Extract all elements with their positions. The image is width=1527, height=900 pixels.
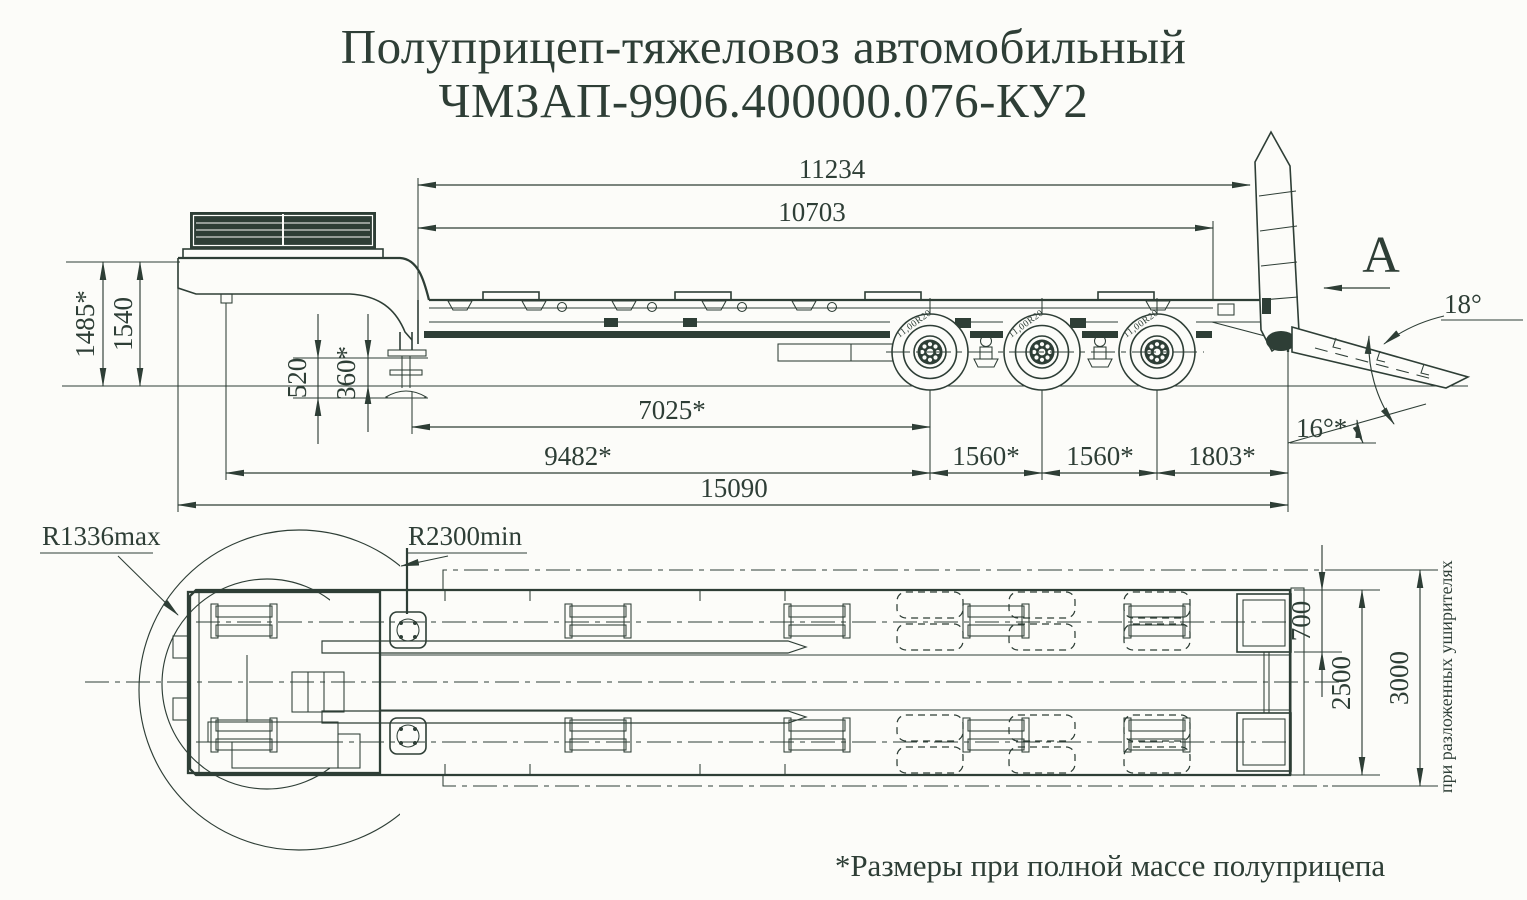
gooseneck-rack <box>183 212 383 258</box>
dim-7025: 7025* <box>638 395 706 425</box>
ramp-raised <box>1255 132 1299 351</box>
toolbox-side <box>778 344 900 361</box>
dim-3000: 3000 <box>1384 651 1414 705</box>
dim-rear-angle: 16°* <box>1296 413 1347 443</box>
dim-deck-length: 10703 <box>778 197 846 227</box>
plan-deck <box>85 548 1345 775</box>
wideners-extended <box>443 570 1332 786</box>
view-direction-A: A <box>1324 227 1400 288</box>
swing-arc-r1336 <box>162 579 372 789</box>
view-label-a: A <box>1362 227 1400 284</box>
dim-ramp-angle: 18° <box>1444 289 1482 319</box>
dim-frame-length: 11234 <box>799 154 866 184</box>
kingpin-pads <box>390 612 426 754</box>
footnote: *Размеры при полной массе полуприцепа <box>790 848 1430 884</box>
dim-height-laden: 1485* <box>70 290 100 358</box>
bogie-wheels: 11,00R20 11,00R20 11,00R20 <box>886 298 1204 480</box>
dim-9482: 9482* <box>544 441 612 471</box>
dim-520: 520 <box>282 358 312 399</box>
dim-1560-a: 1560* <box>952 441 1020 471</box>
extended-width-note: при разложенных уширителях <box>1436 560 1456 793</box>
label-r2300min: R2300min <box>408 521 523 551</box>
label-r1336max: R1336max <box>42 521 161 551</box>
gooseneck <box>178 212 429 340</box>
plan-view: R1336max R2300min 700 <box>40 521 1456 850</box>
plan-view-dimensions: 700 2500 3000 при разложенных уширителях <box>1286 545 1456 793</box>
side-view: 11,00R20 11,00R20 11,00R20 <box>62 132 1523 512</box>
radius-callouts: R1336max R2300min <box>40 521 527 615</box>
dim-1803: 1803* <box>1188 441 1256 471</box>
dim-360: 360* <box>331 346 361 400</box>
technical-drawing: 11,00R20 11,00R20 11,00R20 <box>0 0 1527 900</box>
dim-15090: 15090 <box>700 473 768 503</box>
kingpin <box>221 294 232 303</box>
dim-height-unladen: 1540 <box>108 297 138 351</box>
dim-1560-b: 1560* <box>1066 441 1134 471</box>
dim-2500: 2500 <box>1326 656 1356 710</box>
dim-700: 700 <box>1286 601 1316 642</box>
drawing-sheet: Полуприцеп-тяжеловоз автомобильный ЧМЗАП… <box>0 0 1527 900</box>
ramp-lowered <box>1292 327 1468 388</box>
landing-leg <box>386 332 426 398</box>
